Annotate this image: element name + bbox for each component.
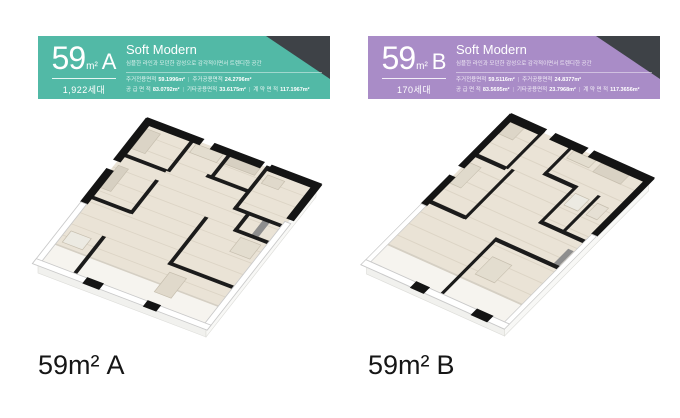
style-title: Soft Modern: [456, 43, 652, 57]
divider: [52, 78, 116, 79]
style-subtitle: 심플한 라인과 모던한 감성으로 감각적이면서 트렌디한 공간: [456, 59, 652, 67]
unit-card-59a: 59m²A 1,922세대 Soft Modern 심플한 라인과 모던한 감성…: [0, 0, 340, 418]
unit-size-title: 59m²B: [368, 42, 460, 74]
style-info: Soft Modern 심플한 라인과 모던한 감성으로 감각적이면서 트렌디한…: [456, 43, 652, 96]
stat-value: 83.0792m²: [153, 87, 180, 93]
style-subtitle: 심플한 라인과 모던한 감성으로 감각적이면서 트렌디한 공간: [126, 59, 322, 67]
stats-row-2: 공 급 면 적83.0792m²|기타공용면적33.6175m²|계 약 면 적…: [126, 86, 322, 96]
stat-label: 주거공용면적: [522, 77, 552, 83]
caption-unit: m²: [68, 350, 99, 380]
units-count: 1,922세대: [38, 83, 130, 96]
plan-caption-59a: 59m²A: [38, 351, 125, 381]
floor-plan-3d-render-b: [358, 106, 663, 346]
style-title: Soft Modern: [126, 43, 322, 57]
area-block: 59m²A 1,922세대: [38, 42, 130, 96]
stat-label: 기타공용면적: [187, 87, 217, 93]
stat-value: 117.1967m²: [280, 87, 309, 93]
caption-number: 59: [38, 350, 68, 380]
area-number: 59: [52, 40, 86, 76]
divider: [382, 78, 446, 79]
type-letter: A: [102, 49, 117, 74]
stat-label: 주거전용면적: [456, 77, 486, 83]
stat-value: 83.5695m²: [483, 87, 510, 93]
plan-caption-59b: 59m²B: [368, 351, 455, 381]
stat-separator: |: [512, 87, 513, 93]
type-letter: B: [432, 49, 447, 74]
stat-label: 기타공용면적: [517, 87, 547, 93]
unit-size-title: 59m²A: [38, 42, 130, 74]
area-unit: m²: [86, 61, 98, 72]
unit-card-59b: 59m²B 170세대 Soft Modern 심플한 라인과 모던한 감성으로…: [340, 0, 680, 418]
unit-banner-59a: 59m²A 1,922세대 Soft Modern 심플한 라인과 모던한 감성…: [38, 36, 330, 99]
caption-number: 59: [368, 350, 398, 380]
divider: [126, 72, 322, 73]
stat-separator: |: [579, 87, 580, 93]
unit-banner-59b: 59m²B 170세대 Soft Modern 심플한 라인과 모던한 감성으로…: [368, 36, 660, 99]
caption-letter: A: [107, 350, 125, 380]
stat-value: 24.8377m²: [555, 77, 582, 83]
stat-value: 59.5116m²: [488, 77, 514, 83]
stat-separator: |: [249, 87, 250, 93]
area-number: 59: [382, 40, 416, 76]
stats-row-2: 공 급 면 적83.5695m²|기타공용면적23.7968m²|계 약 면 적…: [456, 86, 652, 96]
area-block: 59m²B 170세대: [368, 42, 460, 96]
stat-label: 공 급 면 적: [126, 87, 151, 93]
stat-label: 주거전용면적: [126, 77, 156, 83]
style-info: Soft Modern 심플한 라인과 모던한 감성으로 감각적이면서 트렌디한…: [126, 43, 322, 96]
page: 59m²A 1,922세대 Soft Modern 심플한 라인과 모던한 감성…: [0, 0, 680, 418]
stat-value: 33.6175m²: [219, 87, 246, 93]
stat-value: 24.2796m²: [225, 77, 252, 83]
stat-label: 주거공용면적: [192, 77, 222, 83]
stats-row-1: 주거전용면적59.5116m²|주거공용면적24.8377m²: [456, 76, 652, 86]
area-unit: m²: [416, 61, 428, 72]
caption-letter: B: [437, 350, 455, 380]
stat-separator: |: [188, 77, 189, 83]
floor-plan-3d-render-a: [30, 106, 330, 346]
stat-value: 59.1996m²: [158, 77, 185, 83]
stat-label: 공 급 면 적: [456, 87, 481, 93]
caption-unit: m²: [398, 350, 429, 380]
stat-separator: |: [518, 77, 519, 83]
stat-separator: |: [182, 87, 183, 93]
divider: [456, 72, 652, 73]
stats-row-1: 주거전용면적59.1996m²|주거공용면적24.2796m²: [126, 76, 322, 86]
stat-label: 계 약 면 적: [253, 87, 278, 93]
units-count: 170세대: [368, 83, 460, 96]
stat-value: 23.7968m²: [549, 87, 576, 93]
stat-label: 계 약 면 적: [583, 87, 608, 93]
stat-value: 117.3656m²: [610, 87, 639, 93]
